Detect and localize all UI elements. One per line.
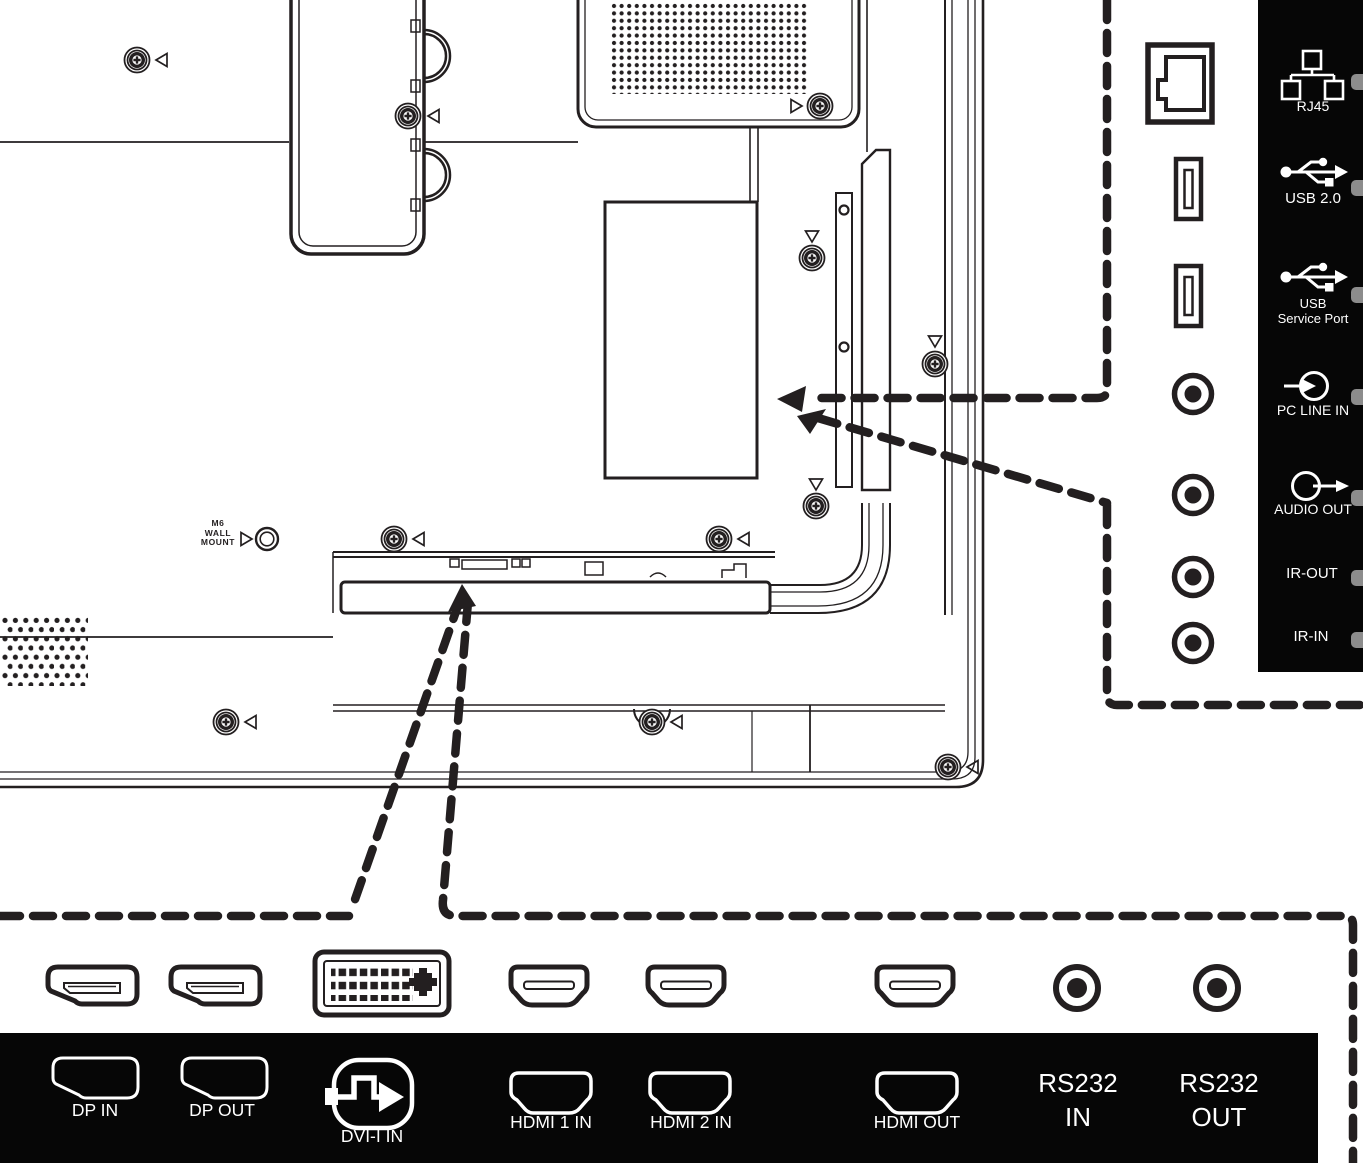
wall-mount-label: M6 WALL MOUNT (192, 519, 244, 548)
bottom-port-label-bar (0, 1033, 1318, 1163)
dp-out-jack (171, 967, 260, 1004)
side-stub (1351, 490, 1363, 506)
side-port-label-audio-out: AUDIO OUT (1274, 502, 1352, 517)
rear-panel-diagram: RJ45 USB 2.0 USB Service Port PC LINE IN… (0, 0, 1363, 1163)
side-stub (1351, 632, 1363, 648)
rj45-jack (1148, 45, 1212, 122)
speaker-grille-drawing (578, 0, 859, 127)
elbow-channel (770, 503, 890, 613)
side-stub (1351, 180, 1363, 196)
rear-view-drawing (0, 0, 983, 787)
bottom-port-label-dp-in: DP IN (72, 1101, 118, 1119)
ir-in-jack (1175, 625, 1212, 662)
hdmi-2-in-jack (648, 967, 724, 1005)
dp-in-jack (48, 967, 137, 1004)
bottom-connectors (48, 952, 1238, 1015)
side-stub (1351, 570, 1363, 586)
bottom-port-label-rs232-out-1: RS232 (1179, 1070, 1259, 1097)
side-stub (1351, 287, 1363, 303)
side-port-label-usb: USB (1300, 297, 1327, 311)
side-port-label-usb20: USB 2.0 (1285, 191, 1341, 207)
pc-line-in-jack (1175, 376, 1212, 413)
line-art-layer (0, 0, 1363, 1163)
access-panel-rect (605, 202, 757, 478)
rs232-out-jack (1196, 967, 1238, 1009)
bottom-port-label-rs232-out-2: OUT (1192, 1104, 1247, 1131)
usb-service-port-jack (1176, 266, 1201, 326)
bottom-port-label-dvi-i-in: DVI-I IN (341, 1127, 403, 1145)
side-port-label-ir-out: IR-OUT (1286, 566, 1338, 582)
bottom-connector-module (333, 552, 775, 613)
side-stub (1351, 389, 1363, 405)
callout-dashed-lines (0, 0, 1363, 1163)
bottom-port-label-rs232-in-2: IN (1065, 1104, 1091, 1131)
bottom-port-label-dp-out: DP OUT (189, 1101, 255, 1119)
wall-mount-hole (256, 528, 278, 550)
screws (125, 48, 979, 780)
rs232-in-jack (1056, 967, 1098, 1009)
left-speaker-grille (2, 616, 88, 686)
side-port-label-ir-in: IR-IN (1294, 629, 1329, 645)
side-port-label-service-port: Service Port (1278, 312, 1349, 326)
handle-drawing (291, 0, 450, 254)
hdmi-out-jack (877, 967, 953, 1005)
audio-out-jack (1175, 477, 1212, 514)
usb-2-0-jack (1176, 159, 1201, 219)
callout-arrowheads (448, 386, 826, 612)
hdmi-1-in-jack (511, 967, 587, 1005)
bottom-port-label-rs232-in-1: RS232 (1038, 1070, 1118, 1097)
ir-out-jack (1175, 559, 1212, 596)
bottom-port-label-hdmi-1-in: HDMI 1 IN (510, 1113, 592, 1131)
bottom-port-label-hdmi-out: HDMI OUT (874, 1113, 961, 1131)
side-port-label-rj45: RJ45 (1297, 99, 1330, 114)
side-port-label-pc-line-in: PC LINE IN (1277, 403, 1349, 418)
side-stub (1351, 74, 1363, 90)
bottom-port-label-hdmi-2-in: HDMI 2 IN (650, 1113, 732, 1131)
dvi-jack (315, 952, 449, 1015)
side-connectors (1148, 45, 1212, 662)
